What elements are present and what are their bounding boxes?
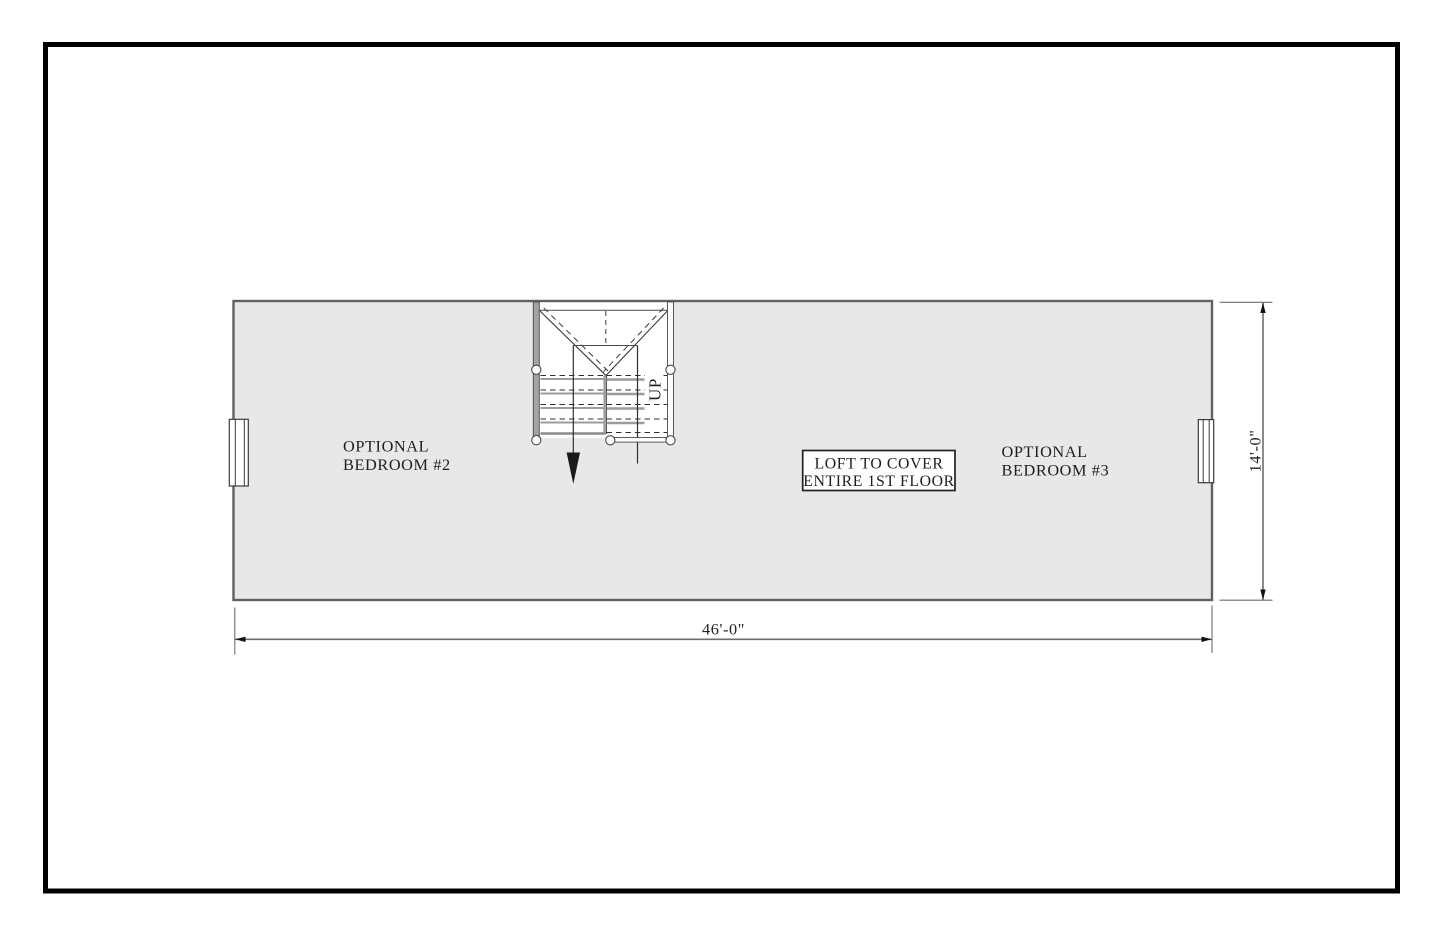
height-dimension-text: 14'-0" — [1246, 429, 1265, 472]
dimension-arrow — [1260, 590, 1265, 600]
floor-plan-drawing: UP 46'-0" 14'-0" — [0, 0, 1445, 935]
dimension-height: 14'-0" — [1220, 302, 1273, 600]
newel-post — [606, 436, 615, 445]
loft-note-line: LOFT TO COVER — [815, 456, 944, 473]
window-frame — [1198, 420, 1213, 483]
newel-post — [532, 365, 541, 374]
newel-post — [532, 436, 541, 445]
stair-up-label: UP — [646, 378, 665, 401]
dimension-arrow — [235, 637, 245, 642]
room-label-line: BEDROOM #3 — [1002, 461, 1110, 480]
room-label-line: BEDROOM #2 — [343, 455, 451, 474]
loft-note-line: ENTIRE 1ST FLOOR — [803, 473, 955, 490]
window-frame — [229, 419, 248, 486]
width-dimension-text: 46'-0" — [702, 620, 745, 639]
floor-plan-sheet: UP 46'-0" 14'-0" — [0, 0, 1445, 935]
window-left — [229, 419, 248, 486]
newel-post — [666, 365, 675, 374]
loft-note: LOFT TO COVER ENTIRE 1ST FLOOR — [803, 451, 955, 491]
dimension-width: 46'-0" — [235, 606, 1212, 655]
newel-post — [666, 436, 675, 445]
room-label-line: OPTIONAL — [343, 437, 429, 456]
dimension-arrow — [1202, 637, 1212, 642]
stair-rail-bottom — [608, 438, 675, 443]
room-label-line: OPTIONAL — [1002, 442, 1088, 461]
window-right — [1198, 420, 1213, 483]
dimension-arrow — [1260, 303, 1265, 313]
